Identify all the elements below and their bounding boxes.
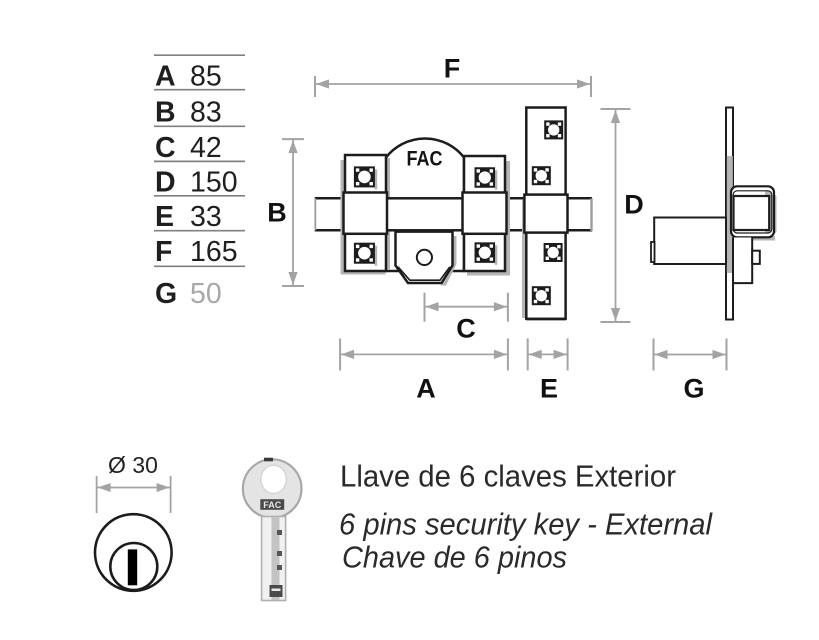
svg-text:6 pins security key - External: 6 pins security key - External bbox=[339, 507, 713, 542]
svg-text:FAC: FAC bbox=[263, 500, 282, 510]
svg-text:50: 50 bbox=[190, 278, 222, 310]
svg-text:B: B bbox=[155, 97, 176, 129]
svg-text:F: F bbox=[444, 54, 461, 84]
svg-text:85: 85 bbox=[190, 61, 222, 93]
svg-text:42: 42 bbox=[190, 132, 222, 164]
svg-text:33: 33 bbox=[190, 201, 222, 233]
svg-text:D: D bbox=[624, 190, 644, 220]
svg-text:83: 83 bbox=[190, 97, 222, 129]
svg-text:C: C bbox=[456, 314, 476, 344]
svg-text:Chave de 6 pinos: Chave de 6 pinos bbox=[342, 540, 567, 575]
svg-text:G: G bbox=[683, 374, 704, 404]
svg-text:A: A bbox=[416, 374, 436, 404]
svg-text:Ø 30: Ø 30 bbox=[108, 452, 158, 478]
svg-text:165: 165 bbox=[190, 236, 238, 268]
svg-text:E: E bbox=[155, 201, 174, 233]
svg-text:FAC: FAC bbox=[407, 148, 443, 171]
svg-text:A: A bbox=[155, 61, 176, 93]
svg-text:150: 150 bbox=[190, 167, 238, 199]
svg-text:G: G bbox=[155, 278, 177, 310]
svg-text:B: B bbox=[267, 197, 287, 227]
svg-text:D: D bbox=[155, 167, 176, 199]
svg-text:E: E bbox=[540, 374, 558, 404]
svg-text:Llave de 6 claves Exterior: Llave de 6 claves Exterior bbox=[340, 458, 676, 493]
svg-text:C: C bbox=[155, 132, 176, 164]
svg-text:F: F bbox=[155, 236, 172, 268]
